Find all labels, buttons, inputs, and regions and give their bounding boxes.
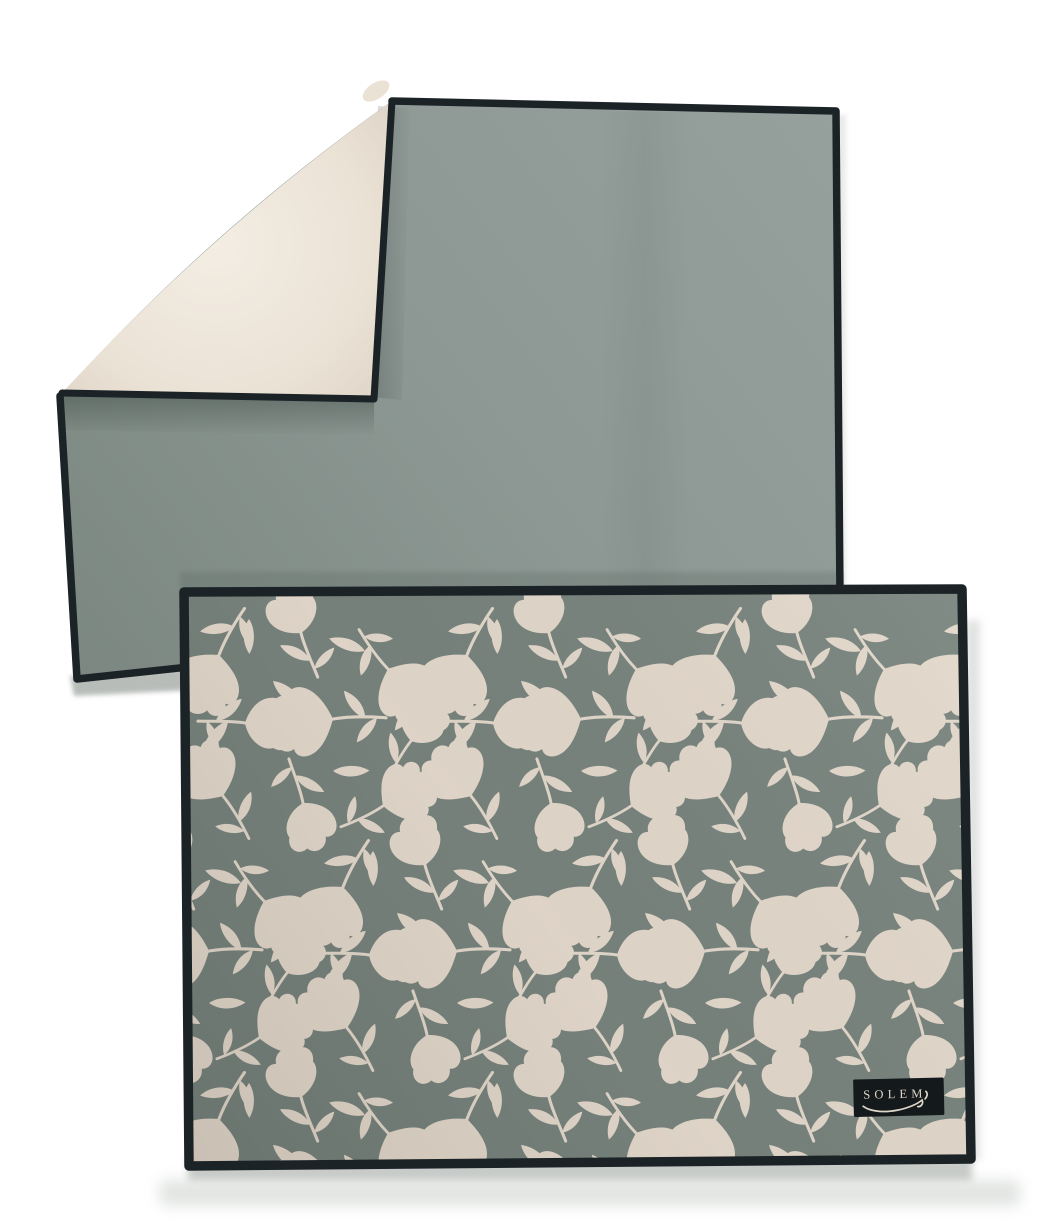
product-photo-towels: SOLEM xyxy=(0,0,1046,1226)
flap-drop-shadow xyxy=(62,396,374,436)
brand-label-text: SOLEM xyxy=(863,1086,927,1101)
floral-towel: SOLEM xyxy=(37,576,1046,1226)
floor-shadow xyxy=(160,1180,1020,1206)
floral-towel-shading xyxy=(184,589,971,1166)
fleece-corner-flap xyxy=(62,101,392,399)
fleece-fold-roll xyxy=(359,76,393,106)
brand-label: SOLEM xyxy=(853,1077,944,1117)
fabric-crease-shading xyxy=(600,112,690,590)
